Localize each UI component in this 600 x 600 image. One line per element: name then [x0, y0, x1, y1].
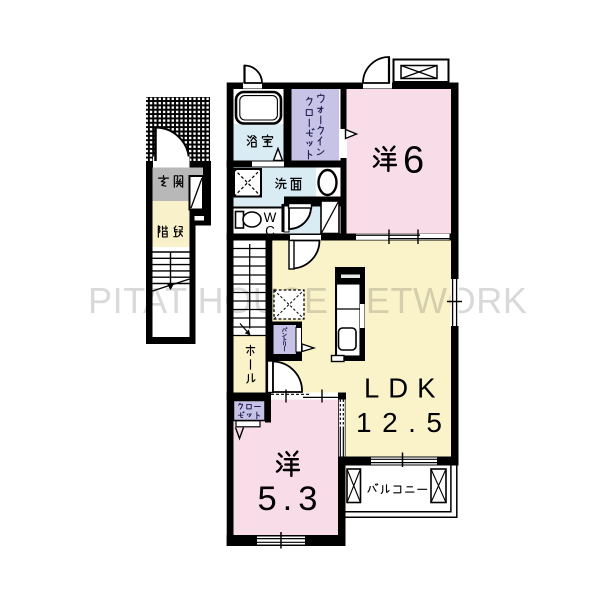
svg-text:6: 6 — [403, 140, 424, 182]
svg-text:LDK: LDK — [364, 373, 445, 404]
svg-text:12.5: 12.5 — [356, 407, 453, 438]
svg-text:5.3: 5.3 — [258, 480, 324, 518]
svg-text:PITAT HOUSE NETWORK: PITAT HOUSE NETWORK — [88, 280, 527, 321]
